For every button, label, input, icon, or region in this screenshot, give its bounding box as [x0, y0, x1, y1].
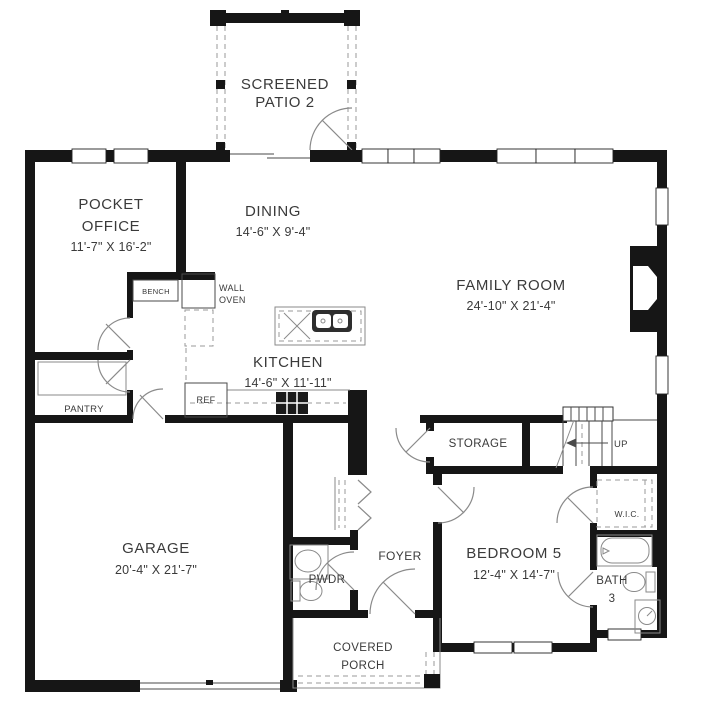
- wic-door: [557, 487, 593, 523]
- floor-plan: SCREENED PATIO 2 POCKET OFFICE 11'-7" X …: [0, 0, 727, 703]
- bathtub: [597, 535, 652, 566]
- label-screened-patio-1: SCREENED: [241, 76, 329, 93]
- dim-pocket-office: 11'-7" X 16'-2": [70, 240, 151, 254]
- dim-garage: 20'-4" X 21'-7": [115, 563, 197, 577]
- bath-door: [558, 572, 593, 607]
- floor-plan-drawing: SCREENED PATIO 2 POCKET OFFICE 11'-7" X …: [0, 0, 727, 703]
- label-family-room: FAMILY ROOM: [456, 277, 565, 294]
- pantry-door: [98, 360, 130, 392]
- label-foyer: FOYER: [378, 549, 421, 563]
- dim-bedroom5: 12'-4" X 14'-7": [473, 568, 555, 582]
- label-pwdr: PWDR: [309, 574, 346, 586]
- cooktop: [276, 392, 308, 414]
- bath-vanity: [635, 600, 660, 633]
- label-bench: BENCH: [142, 287, 170, 296]
- storage-door: [396, 428, 430, 462]
- fireplace: [630, 246, 667, 332]
- front-door: [370, 569, 415, 614]
- kitchen-island: [275, 307, 365, 345]
- patio-door: [310, 108, 352, 150]
- label-pocket-office-2: OFFICE: [82, 218, 141, 235]
- label-storage: STORAGE: [449, 438, 508, 450]
- label-pantry: PANTRY: [64, 404, 104, 415]
- bedroom-door: [438, 487, 474, 523]
- label-garage: GARAGE: [122, 540, 190, 557]
- bath-toilet: [623, 572, 655, 592]
- pwdr-fixtures: [290, 545, 328, 601]
- label-up: UP: [614, 439, 628, 450]
- label-bath3-1: BATH: [596, 575, 627, 587]
- stairs: [556, 407, 657, 468]
- garage-door: [140, 680, 280, 689]
- label-bath3-2: 3: [609, 593, 616, 605]
- label-dining: DINING: [245, 203, 301, 220]
- label-screened-patio-2: PATIO 2: [255, 94, 315, 111]
- label-covered-porch-1: COVERED: [333, 642, 393, 654]
- label-kitchen: KITCHEN: [253, 354, 323, 371]
- dim-dining: 14'-6" X 9'-4": [236, 225, 311, 239]
- label-bedroom5: BEDROOM 5: [466, 545, 561, 562]
- wall-oven-cabinet: [182, 274, 215, 383]
- label-wic: W.I.C.: [615, 509, 640, 519]
- label-pocket-office-1: POCKET: [78, 196, 143, 213]
- dim-kitchen: 14'-6" X 11'-11": [244, 376, 331, 390]
- bath3-fixtures: [597, 480, 660, 633]
- office-door: [98, 318, 130, 350]
- room-labels: SCREENED PATIO 2 POCKET OFFICE 11'-7" X …: [64, 76, 639, 672]
- sliding-door: [230, 150, 310, 162]
- label-wall-oven-2: OVEN: [219, 295, 246, 305]
- pantry-shelf: [38, 362, 126, 395]
- garage-entry-door: [133, 389, 163, 419]
- label-wall-oven-1: WALL: [219, 283, 244, 293]
- foyer-closet: [335, 477, 371, 530]
- label-covered-porch-2: PORCH: [341, 660, 385, 672]
- label-ref: REF: [197, 395, 216, 405]
- wic-shelving: [597, 480, 652, 527]
- windows: [72, 149, 668, 653]
- dim-family-room: 24'-10" X 21'-4": [466, 299, 555, 313]
